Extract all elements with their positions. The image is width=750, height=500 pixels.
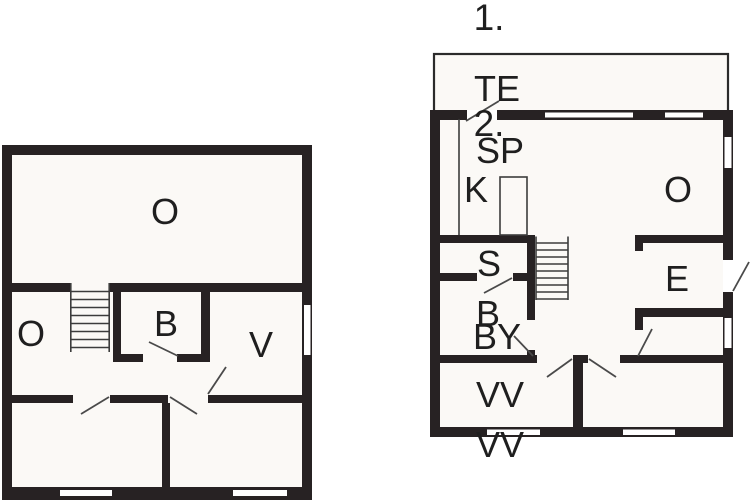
wall bbox=[620, 355, 723, 363]
wall bbox=[113, 354, 143, 362]
window bbox=[725, 137, 732, 168]
room-label-o-side: O bbox=[17, 313, 45, 354]
window bbox=[233, 490, 287, 496]
room-label-s: S bbox=[477, 243, 501, 284]
wall bbox=[635, 235, 643, 251]
wall bbox=[527, 235, 535, 320]
wall bbox=[208, 395, 302, 403]
window bbox=[665, 113, 703, 118]
room-label-e: E bbox=[665, 258, 689, 299]
window bbox=[304, 305, 311, 355]
wall bbox=[2, 283, 70, 292]
floorplan-page: O O B V bbox=[0, 0, 750, 500]
room-label-by: BY bbox=[473, 316, 521, 357]
window bbox=[60, 490, 112, 496]
window bbox=[545, 113, 633, 118]
room-label-o: O bbox=[664, 169, 692, 210]
wall bbox=[201, 283, 210, 362]
wall bbox=[436, 235, 532, 243]
room-label-vv: VV bbox=[476, 374, 524, 415]
wall bbox=[436, 273, 477, 281]
floor-title-2: 2. bbox=[474, 103, 505, 144]
upper-floor-plan: O O B V bbox=[2, 145, 312, 500]
wall bbox=[2, 145, 12, 500]
wall bbox=[177, 354, 202, 362]
wall bbox=[113, 283, 121, 362]
wall bbox=[635, 235, 723, 243]
floor-title-1: 1. bbox=[474, 0, 505, 38]
door-opening bbox=[723, 260, 733, 292]
room-label-k: K bbox=[464, 169, 488, 210]
wall bbox=[635, 308, 723, 317]
door-swing bbox=[733, 262, 749, 291]
room-label-v: V bbox=[249, 324, 273, 365]
wall bbox=[162, 403, 170, 487]
wall bbox=[2, 395, 73, 403]
wall bbox=[573, 355, 583, 437]
window bbox=[623, 430, 675, 436]
room-label-vv-outside: VV bbox=[476, 424, 524, 465]
wall bbox=[110, 395, 168, 403]
window bbox=[725, 318, 732, 348]
wall bbox=[635, 308, 643, 330]
wall bbox=[2, 145, 312, 155]
room-label-o-main: O bbox=[151, 191, 179, 232]
room-label-b: B bbox=[154, 303, 178, 344]
floorplan-drawing: O O B V bbox=[0, 0, 750, 500]
